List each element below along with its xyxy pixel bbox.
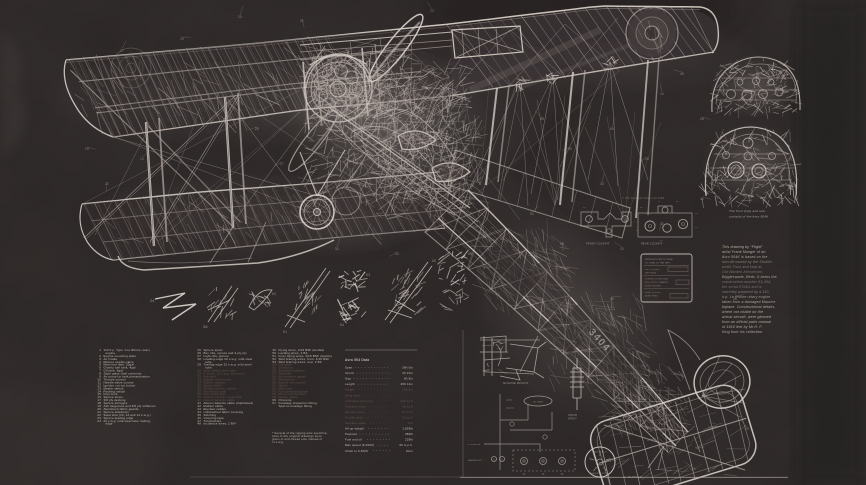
svg-text:27: 27	[120, 49, 124, 53]
svg-text:16: 16	[140, 157, 144, 161]
svg-text:All-up weight: All-up weight	[345, 427, 364, 431]
svg-text:OIL TANK: OIL TANK	[533, 401, 544, 404]
svg-text:29: 29	[745, 427, 749, 431]
svg-text:63: 63	[366, 273, 370, 277]
svg-text:cockpits of the Avro 504K: cockpits of the Avro 504K	[729, 215, 769, 219]
svg-text:TO ENGINE: TO ENGINE	[467, 444, 481, 446]
svg-text:STRUT: STRUT	[568, 418, 577, 421]
svg-text:24: 24	[97, 419, 101, 423]
svg-text:9min: 9min	[406, 449, 413, 453]
svg-text:RIGHT WING: RIGHT WING	[645, 296, 658, 298]
svg-text:INSTRUCTIONS TO PLAN: INSTRUCTIONS TO PLAN	[645, 258, 673, 261]
svg-text:14: 14	[560, 473, 564, 476]
svg-text:where not visible on t: where not visible on the	[722, 310, 763, 314]
svg-text:25: 25	[180, 37, 184, 41]
svg-text:the serial E3404 and i: the serial E3404 and is	[722, 285, 762, 289]
svg-text:29: 29	[197, 363, 201, 367]
svg-text:Climb to 6,500ft: Climb to 6,500ft	[345, 449, 368, 453]
svg-text:FRONT COCKPIT: FRONT COCKPIT	[586, 242, 610, 246]
svg-text:Max speed (6,000ft): Max speed (6,000ft)	[345, 443, 374, 447]
svg-text:worth Trust and kept a: worth Trust and kept at	[722, 265, 763, 269]
svg-text:PULL STICK TOWARDS: PULL STICK TOWARDS	[645, 281, 669, 284]
svg-text:95 m.p.h.: 95 m.p.h.	[399, 443, 413, 447]
svg-text:380lb: 380lb	[405, 432, 413, 436]
svg-text:ENGINE MOUNT: ENGINE MOUNT	[503, 381, 529, 385]
svg-text:10ft: 10ft	[407, 421, 413, 425]
svg-text:38: 38	[610, 297, 614, 301]
svg-text:RIGHT RUDDER: RIGHT RUDDER	[645, 292, 661, 294]
svg-text:Rudder area: Rudder area	[345, 416, 363, 420]
svg-text:This drawing by “Flight”: This drawing by “Flight”	[722, 245, 763, 249]
svg-text:h.p. Le Rhône rotary engin: h.p. Le Rhône rotary engine	[722, 295, 770, 299]
svg-text:F. MUNGER: F. MUNGER	[624, 475, 643, 479]
svg-text:24: 24	[150, 298, 155, 303]
svg-text:TO TURN TO THE LEFT: TO TURN TO THE LEFT	[645, 263, 671, 265]
svg-text:5ft 6in: 5ft 6in	[404, 377, 413, 381]
svg-text:65: 65	[432, 259, 436, 263]
svg-text:28: 28	[197, 357, 201, 361]
svg-text:47: 47	[463, 97, 467, 101]
svg-text:43: 43	[620, 247, 624, 251]
svg-text:artist Frank Munger of an: artist Frank Munger of an	[722, 250, 766, 254]
svg-text:36 sq ft: 36 sq ft	[402, 404, 413, 408]
svg-text:actual aircraft, were glean: actual aircraft, were gleaned	[722, 315, 772, 319]
svg-text:Chord: Chord	[345, 371, 354, 375]
svg-text:28: 28	[645, 157, 649, 161]
svg-text:45: 45	[680, 72, 684, 76]
svg-text:currently powered by a 110: currently powered by a 110	[722, 290, 769, 294]
svg-text:Fuel and oil: Fuel and oil	[345, 438, 362, 442]
svg-text:50: 50	[610, 127, 614, 131]
svg-text:Height: Height	[345, 388, 354, 392]
svg-text:LEFT RUDDER: LEFT RUDDER	[645, 269, 660, 271]
svg-text:MAGNETOS: MAGNETOS	[468, 459, 482, 462]
svg-text:26: 26	[203, 324, 208, 329]
svg-text:King from his collection: King from his collection	[722, 330, 762, 334]
svg-text:(including ailerons): (including ailerons)	[345, 399, 373, 403]
svg-text:construction number 63,404,: construction number 63,404,	[722, 280, 771, 284]
svg-text:330 sq ft: 330 sq ft	[400, 399, 413, 403]
svg-text:1: 1	[99, 348, 101, 352]
svg-text:Avro 504 Data: Avro 504 Data	[345, 358, 369, 362]
svg-text:taken from a damaged Maurice: taken from a damaged Maurice	[722, 300, 775, 304]
svg-text:Tailplane area: Tailplane area	[345, 404, 366, 408]
svg-text:66: 66	[468, 252, 472, 256]
svg-text:in s.w.g.: in s.w.g.	[272, 440, 284, 444]
svg-text:46: 46	[476, 132, 480, 136]
svg-text:Spar-to-fuselage fitting: Spar-to-fuselage fitting	[279, 404, 313, 408]
svg-text:67: 67	[272, 401, 276, 405]
svg-text:Gap: Gap	[345, 377, 351, 381]
svg-text:23: 23	[430, 9, 434, 13]
svg-text:The front (top) and rear: The front (top) and rear	[729, 209, 766, 213]
svg-text:Span: Span	[345, 366, 353, 370]
svg-text:4ft 10in: 4ft 10in	[402, 371, 413, 375]
svg-text:13: 13	[541, 473, 545, 476]
svg-text:10ft 5in: 10ft 5in	[402, 388, 413, 392]
svg-text:26: 26	[700, 117, 704, 121]
svg-text:64: 64	[340, 323, 344, 327]
svg-text:x29: x29	[690, 467, 696, 471]
svg-text:1,829lb: 1,829lb	[402, 427, 413, 431]
svg-text:of 1918 lent by Mr H. F.: of 1918 lent by Mr H. F.	[722, 325, 762, 329]
svg-text:Avro 504K is based on the: Avro 504K is based on the	[721, 255, 768, 259]
svg-text:48: 48	[197, 422, 201, 426]
svg-text:LEFT WING: LEFT WING	[645, 273, 657, 275]
svg-text:Payload: Payload	[345, 432, 357, 436]
svg-text:Old Warden Aerodrome,: Old Warden Aerodrome,	[722, 270, 764, 274]
svg-text:21 sq ft: 21 sq ft	[402, 410, 413, 414]
svg-text:Tailplane span: Tailplane span	[345, 421, 366, 425]
svg-text:30: 30	[600, 182, 604, 186]
svg-text:29ft 11in: 29ft 11in	[401, 382, 414, 386]
svg-text:REAR COCKPIT: REAR COCKPIT	[641, 242, 663, 246]
svg-text:Elevator area: Elevator area	[345, 410, 365, 414]
svg-text:Biggleswade, Beds. It bears th: Biggleswade, Beds. It bears the	[722, 275, 777, 279]
svg-text:Length: Length	[345, 382, 355, 386]
svg-text:Wing area: Wing area	[345, 393, 360, 397]
svg-text:Incidence wires, 2 BA*: Incidence wires, 2 BA*	[204, 422, 238, 426]
svg-text:19: 19	[85, 147, 89, 151]
svg-text:40: 40	[482, 257, 486, 261]
svg-text:12 sq ft: 12 sq ft	[402, 416, 413, 420]
svg-text:228lb: 228lb	[405, 438, 413, 442]
svg-text:44: 44	[660, 92, 664, 96]
svg-text:RIGHT RUDDER: RIGHT RUDDER	[645, 286, 661, 288]
svg-text:62: 62	[272, 292, 276, 296]
svg-text:52: 52	[500, 237, 504, 241]
svg-text:biplane. Constructional detail: biplane. Constructional details,	[722, 305, 775, 309]
svg-text:49: 49	[540, 117, 544, 121]
svg-text:31: 31	[335, 247, 339, 251]
svg-text:CONTROL IN NEUTRAL: CONTROL IN NEUTRAL	[645, 278, 668, 281]
svg-text:36ft 0in: 36ft 0in	[402, 366, 413, 370]
svg-text:51: 51	[530, 212, 534, 216]
svg-text:14: 14	[522, 473, 526, 476]
svg-text:32: 32	[365, 232, 369, 236]
svg-text:from an official parts man: from an official parts manual	[722, 320, 771, 324]
svg-text:23: 23	[238, 15, 242, 19]
svg-text:edge: edge	[106, 422, 113, 426]
svg-text:61: 61	[283, 330, 287, 334]
svg-text:aircraft owned by the Shuttle-: aircraft owned by the Shuttle-	[722, 260, 774, 264]
svg-text:© IPC Transport Press Ltd 1969: © IPC Transport Press Ltd 1969	[622, 196, 665, 200]
